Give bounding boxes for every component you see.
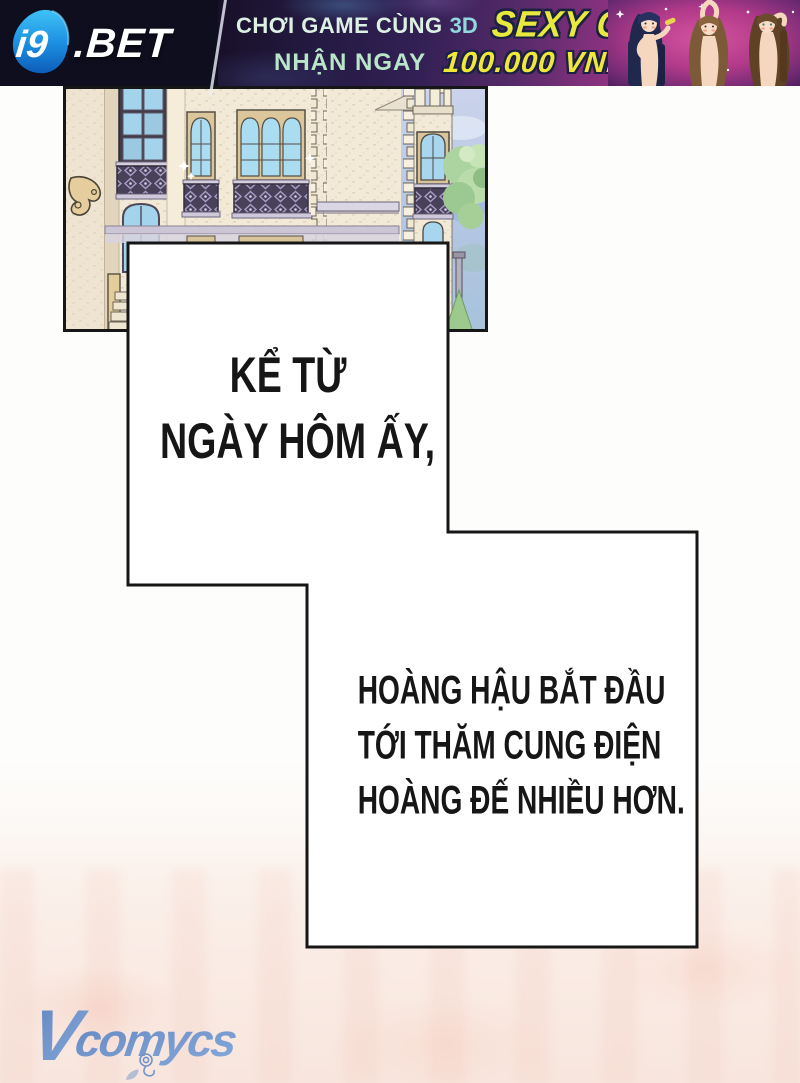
logo-bet-text: .BET <box>72 20 173 67</box>
narration-line: NGÀY HÔM ẤY, <box>160 406 416 476</box>
promo-row-1: CHƠI GAME CÙNG 3D SEXY GIRL <box>236 7 608 46</box>
narration-box-2: HOÀNG HẬU BẮT ĐẦU TỚI THĂM CUNG ĐIỆN HOÀ… <box>307 664 697 829</box>
narration-box-1: KỂ TỪ NGÀY HÔM ẤY, <box>128 342 448 474</box>
svg-text:i9: i9 <box>14 24 51 66</box>
vcomycs-watermark: V comycs <box>24 996 264 1083</box>
narration-line: HOÀNG ĐẾ NHIỀU HƠN. <box>358 773 647 830</box>
watermark-rest: comycs <box>72 1014 240 1066</box>
ad-girls-image <box>608 0 800 86</box>
promo-line1-text: CHƠI GAME CÙNG <box>236 13 443 39</box>
i9bet-logo: i9 .BET <box>0 0 218 86</box>
anime-girl-figure <box>749 14 789 87</box>
palace-panel-illustration <box>63 86 488 332</box>
narration-line: TỚI THĂM CUNG ĐIỆN <box>358 718 647 775</box>
i9bet-logo-icon: i9 <box>8 7 72 79</box>
narration-line: HOÀNG HẬU BẮT ĐẦU <box>358 663 647 720</box>
ad-promo-text: CHƠI GAME CÙNG 3D SEXY GIRL NHẬN NGAY 10… <box>218 0 608 86</box>
promo-line1-highlight: SEXY GIRL <box>490 3 608 45</box>
promo-line2-text: NHẬN NGAY <box>274 49 426 77</box>
promo-line1-3d: 3D <box>450 13 478 39</box>
promo-line2-highlight: 100.000 VND <box>442 47 608 80</box>
narration-line: KỂ TỪ <box>160 340 416 410</box>
ad-banner[interactable]: i9 .BET CHƠI GAME CÙNG 3D SEXY GIRL NHẬN… <box>0 0 800 86</box>
webtoon-page: i9 .BET CHƠI GAME CÙNG 3D SEXY GIRL NHẬN… <box>0 0 800 1083</box>
promo-row-2: NHẬN NGAY 100.000 VND <box>236 47 608 80</box>
